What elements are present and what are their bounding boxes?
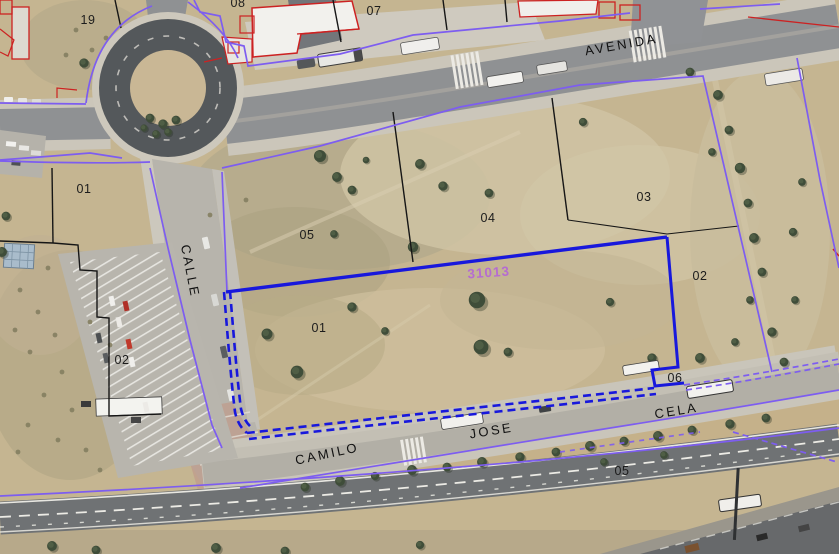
map-canvas: AVENIDA CALLE CAMILO JOSE CELA 19 08 07 … [0, 0, 839, 554]
highlighted-parcel-reference: 31013 [467, 264, 510, 282]
parcel-label-01-highlighted: 01 [312, 321, 327, 335]
parcel-label-03: 03 [637, 190, 652, 204]
parcel-label-02-east: 02 [693, 269, 708, 283]
parcel-label-19: 19 [81, 13, 96, 27]
parcel-label-04: 04 [481, 211, 496, 225]
parcel-label-06: 06 [668, 371, 683, 385]
parcel-label-08: 08 [231, 0, 246, 10]
parcel-label-02-west: 02 [115, 353, 130, 367]
parcel-label-01-nw: 01 [77, 182, 92, 196]
parcel-label-07: 07 [367, 4, 382, 18]
parcel-label-05: 05 [300, 228, 315, 242]
parcel-label-05-south: 05 [615, 464, 630, 478]
cadastral-aerial-map[interactable]: AVENIDA CALLE CAMILO JOSE CELA 19 08 07 … [0, 0, 839, 554]
